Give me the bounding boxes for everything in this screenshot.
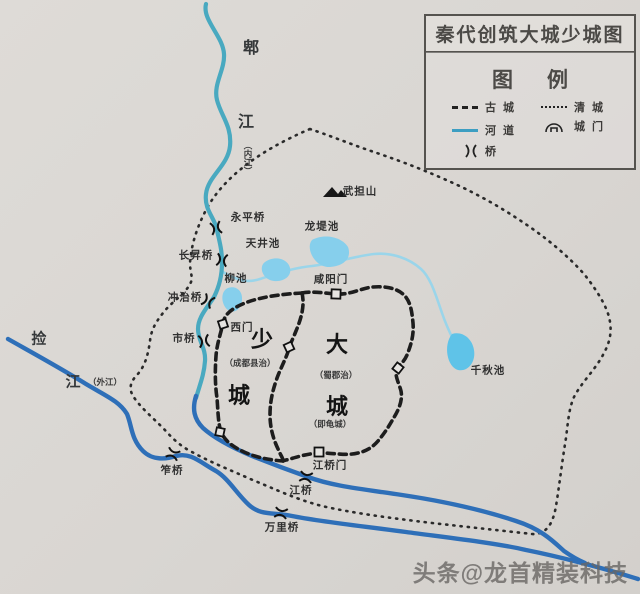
bridge-label-yongping: 永平桥 bbox=[231, 210, 266, 225]
wall-shaocheng bbox=[215, 293, 302, 461]
qin-chengdu-map: 秦代创筑大城少城图 图例 古城 清城 河道 城门 桥 郫 江 （内 bbox=[0, 0, 640, 594]
dacheng-seat-label: （蜀郡治） bbox=[315, 369, 358, 381]
dacheng-alias-label: （即龟城） bbox=[309, 418, 352, 430]
pond-label-qianqiu: 千秋池 bbox=[471, 363, 506, 378]
gate-label-jiangqiaomen: 江桥门 bbox=[313, 458, 348, 473]
pond-longdi bbox=[310, 236, 349, 267]
pond-label-tianjing: 天井池 bbox=[246, 236, 281, 251]
gate-icon-da-east bbox=[392, 362, 403, 373]
dacheng-label-char1: 大 bbox=[326, 327, 348, 359]
bridge-label-zuo: 笮桥 bbox=[161, 463, 184, 478]
river-line-icon bbox=[450, 129, 480, 132]
legend-item-chengmen: 城门 bbox=[539, 118, 610, 134]
dashed-line-icon bbox=[450, 106, 480, 109]
bridge-label-chongzhi: 冲治桥 bbox=[168, 290, 203, 305]
map-title: 秦代创筑大城少城图 bbox=[424, 14, 636, 53]
gate-icon-jiangqiaomen bbox=[315, 448, 324, 457]
gate-icon-shao-south bbox=[215, 427, 224, 436]
legend-item-qingcheng: 清城 bbox=[539, 99, 610, 115]
bridge-label-changsheng: 长昇桥 bbox=[179, 248, 214, 263]
pond-label-liu: 柳池 bbox=[225, 271, 248, 286]
shaocheng-label-char2: 城 bbox=[228, 378, 250, 410]
mountain-label: 武担山 bbox=[343, 184, 378, 199]
dotted-line-icon bbox=[539, 106, 569, 108]
pi-river-label-char2: 江 bbox=[238, 108, 254, 132]
gate-icon-xianyangmen bbox=[331, 289, 340, 298]
jian-river-label-char1: 捡 bbox=[31, 328, 46, 349]
bridge-label-shi: 市桥 bbox=[173, 331, 196, 346]
bridge-label-jiang: 江桥 bbox=[290, 483, 313, 498]
shaocheng-seat-label: （成都县治） bbox=[224, 357, 275, 369]
bridge-marks-icon bbox=[462, 144, 480, 158]
wall-shared bbox=[270, 293, 303, 461]
pi-river-label-char1: 郫 bbox=[243, 34, 259, 58]
pond-label-longdi: 龙堤池 bbox=[305, 219, 340, 234]
jian-river-label-char2: 江 bbox=[65, 371, 80, 392]
legend-item-gucheng: 古城 bbox=[450, 99, 521, 115]
legend-item-hedao: 河道 bbox=[450, 122, 521, 138]
pi-river-alias: （内江） bbox=[242, 141, 254, 175]
watermark: 头条@龙首精装科技 bbox=[413, 554, 628, 588]
legend: 图例 古城 清城 河道 城门 桥 bbox=[424, 51, 636, 170]
gate-arch-icon bbox=[539, 120, 569, 133]
gate-label-xianyangmen: 咸阳门 bbox=[314, 272, 349, 287]
legend-item-qiao: 桥 bbox=[462, 143, 503, 159]
legend-heading: 图例 bbox=[426, 64, 634, 94]
gate-icon-ximen bbox=[218, 319, 228, 329]
dacheng-label-char2: 城 bbox=[326, 389, 348, 421]
jian-river-alias: （外江） bbox=[88, 376, 122, 388]
bridge-label-wanli: 万里桥 bbox=[265, 520, 300, 535]
shaocheng-label-char1: 少 bbox=[251, 322, 273, 354]
